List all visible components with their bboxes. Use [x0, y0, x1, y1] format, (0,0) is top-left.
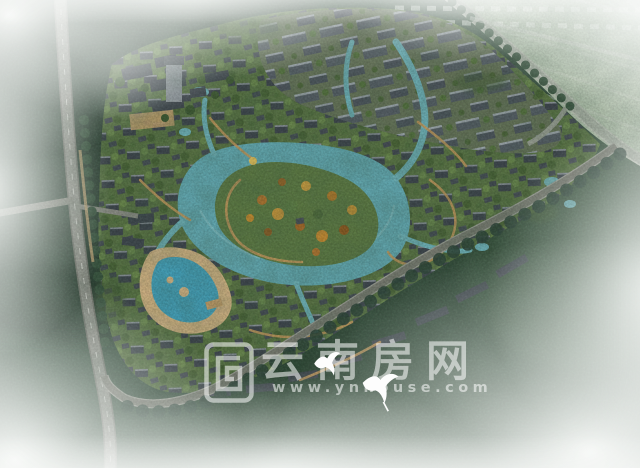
aerial-rendering: 云南房网 www.ynhouse.com — [0, 0, 640, 468]
masterplan-scene — [0, 0, 640, 468]
grain-texture-light — [0, 0, 640, 468]
